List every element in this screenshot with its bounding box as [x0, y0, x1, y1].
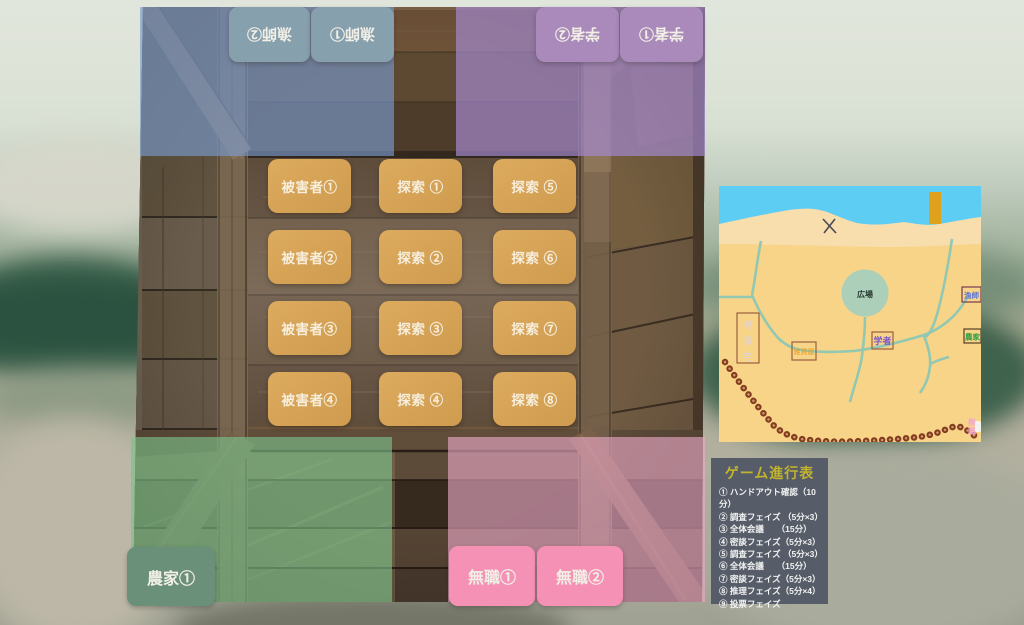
- svg-text:広場: 広場: [857, 289, 873, 299]
- svg-text:長: 長: [743, 336, 752, 346]
- svg-text:農家: 農家: [965, 332, 980, 342]
- svg-text:職: 職: [968, 426, 976, 436]
- svg-text:無: 無: [968, 417, 976, 427]
- svg-text:宅: 宅: [743, 351, 752, 362]
- svg-text:村: 村: [743, 319, 752, 330]
- svg-text:雑貨屋: 雑貨屋: [794, 347, 815, 356]
- svg-text:漁師: 漁師: [964, 290, 979, 300]
- svg-text:学者: 学者: [873, 335, 891, 346]
